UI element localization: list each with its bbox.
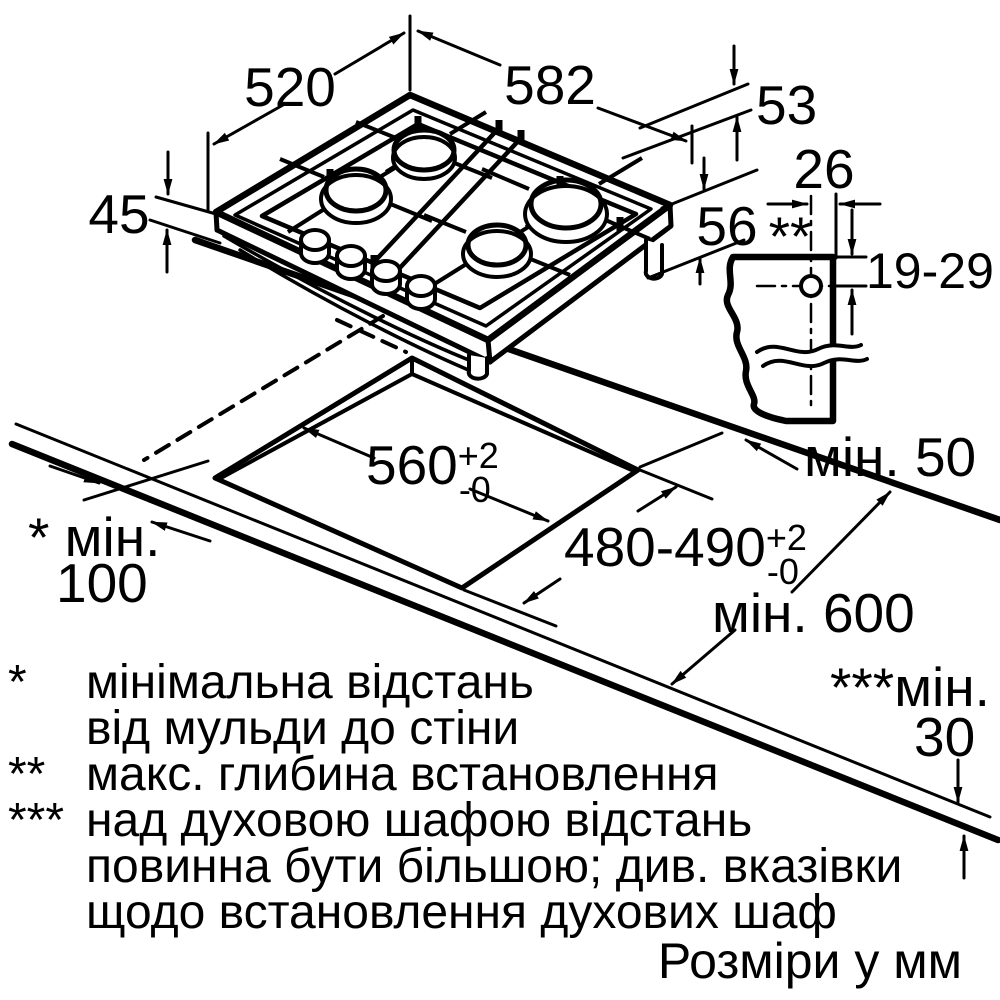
dim-45-label: 45 <box>88 183 149 245</box>
section-detail: 26 19-29 <box>727 138 994 421</box>
footnote-marker-1: * <box>8 656 27 709</box>
knob <box>337 246 365 279</box>
hob-drawing <box>216 95 671 379</box>
dim-min-50: мін. 50 <box>640 426 976 488</box>
diagram-canvas: 520 582 53 45 <box>0 0 1000 1000</box>
burner-right <box>525 180 607 242</box>
burner-left <box>321 169 391 223</box>
fixing-hole <box>801 276 821 296</box>
dim-min-100-label-line2: 100 <box>56 552 148 614</box>
dim-560-label: 560+2-0 <box>366 434 499 510</box>
footnote-line: щодо встановлення духових шаф <box>86 886 837 939</box>
dim-560: 560+2-0 <box>304 428 548 521</box>
dim-53: 53 <box>623 46 817 160</box>
installation-diagram: 520 582 53 45 <box>0 0 1000 1000</box>
knob <box>372 261 400 294</box>
knob <box>407 276 435 309</box>
dim-520-label: 520 <box>244 56 336 118</box>
dim-582-label: 582 <box>504 54 596 116</box>
dim-26-label: 26 <box>793 138 854 200</box>
dim-480-490-label: 480-490+2-0 <box>564 516 807 592</box>
hob-leg-front <box>469 355 487 379</box>
dim-53-label: 53 <box>756 74 817 136</box>
dim-min-50-label: мін. 50 <box>804 426 976 488</box>
dim-19-29-label: 19-29 <box>866 243 994 299</box>
dim-45: 45 <box>88 152 220 272</box>
dim-min-600-label: мін. 600 <box>712 582 915 644</box>
footnote-marker-3: *** <box>8 794 64 847</box>
dim-min-30-label-line2: 30 <box>914 706 975 768</box>
burner-back <box>393 130 455 179</box>
dim-19-29: 19-29 <box>834 210 994 334</box>
projection-dashed-left <box>144 316 383 460</box>
dim-56-label: 56 <box>696 195 757 257</box>
units-caption: Розміри у мм <box>658 933 962 989</box>
knob <box>301 230 329 263</box>
burner-front <box>463 225 531 277</box>
footnotes: * мінімальна відстань від мульди до стін… <box>8 656 902 939</box>
